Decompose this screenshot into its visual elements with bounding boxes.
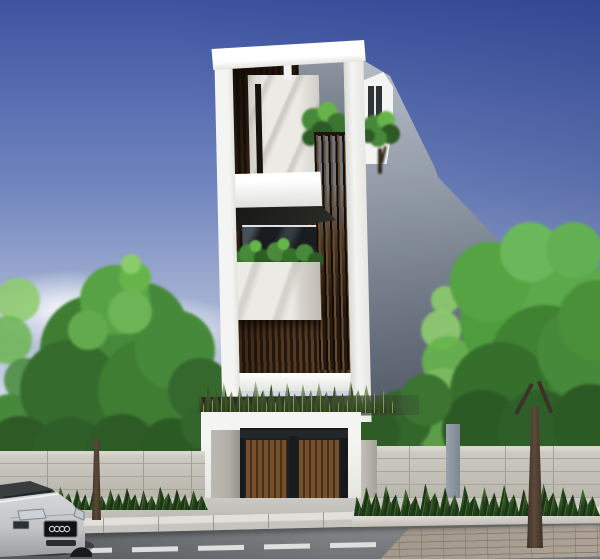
street-trees-right bbox=[356, 222, 600, 474]
car-bumper-vent bbox=[46, 540, 76, 546]
marble-planter-box bbox=[229, 262, 321, 320]
brick-pavement-corner bbox=[378, 525, 600, 559]
architectural-rendering bbox=[0, 0, 600, 559]
main-facade-frame bbox=[200, 42, 383, 422]
car-license-plate bbox=[13, 521, 29, 529]
car-headlight bbox=[18, 509, 46, 520]
silver-sedan-front bbox=[0, 474, 100, 559]
white-balcony-box bbox=[223, 172, 323, 211]
